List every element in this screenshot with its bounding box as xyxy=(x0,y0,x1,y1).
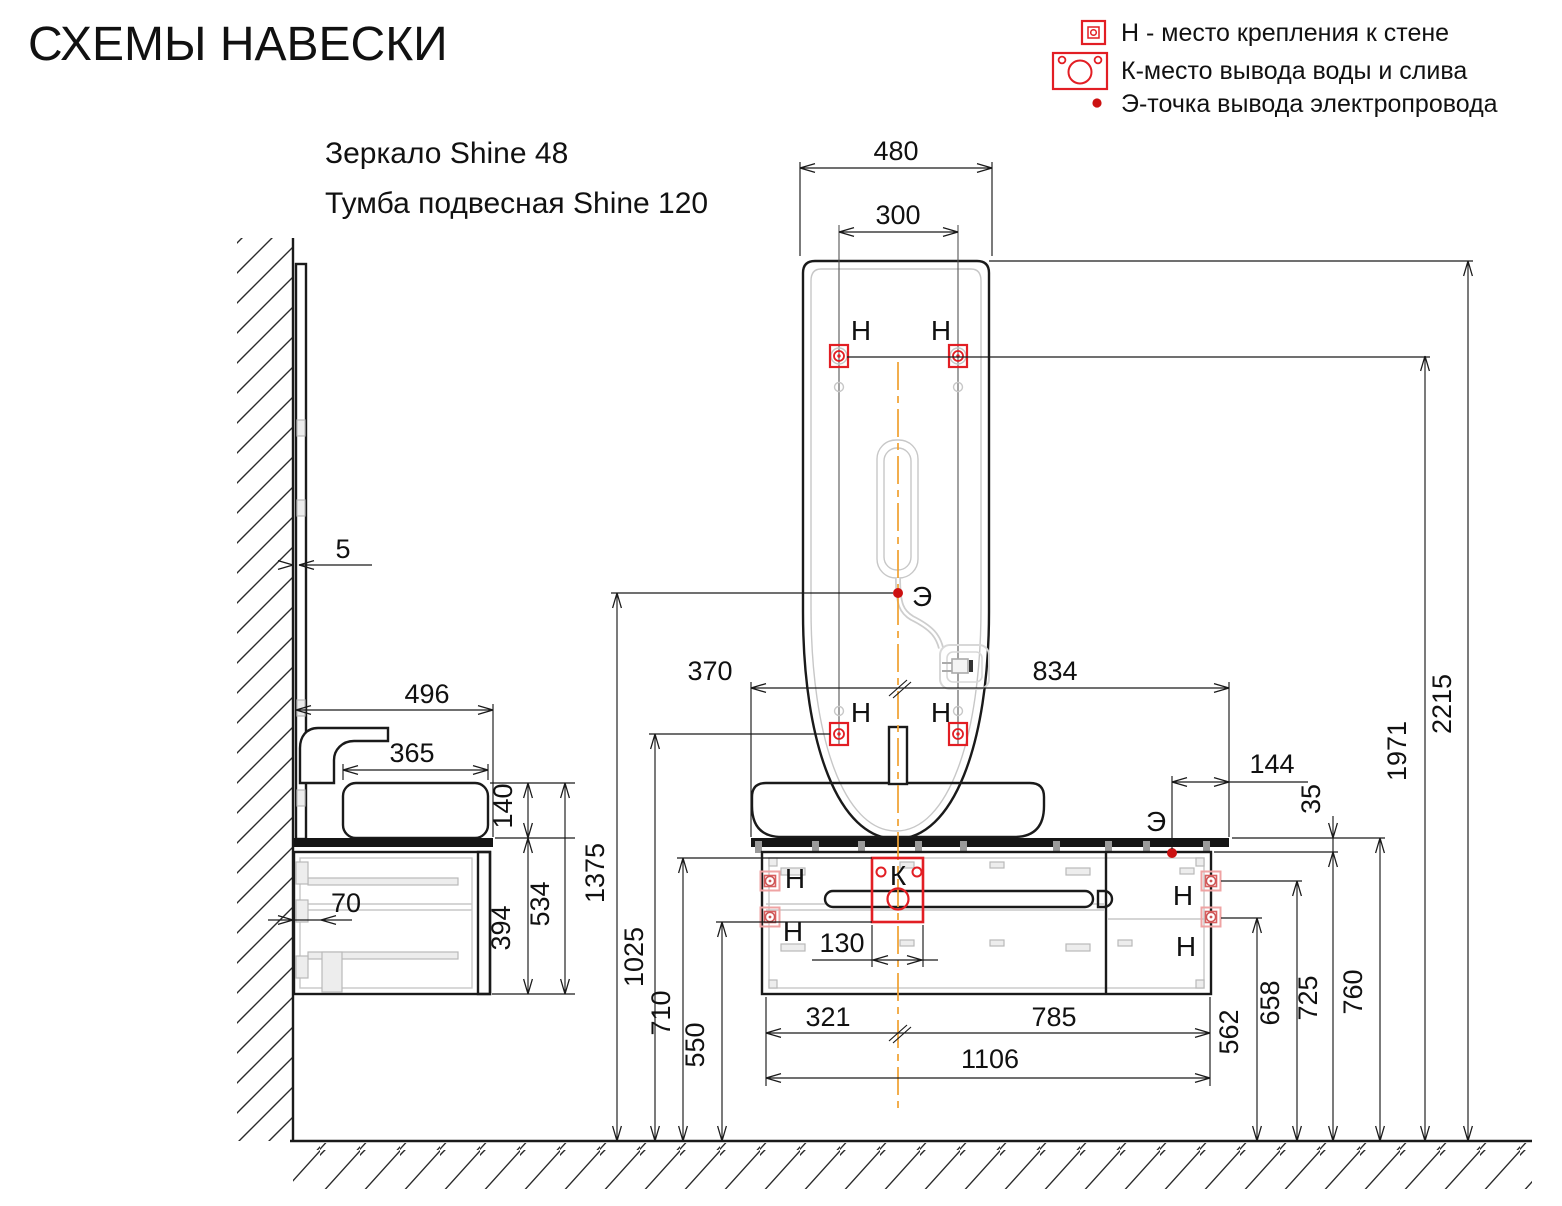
side-view xyxy=(294,264,493,994)
electric-point-icon xyxy=(1092,98,1101,107)
water-drain-icon xyxy=(1053,53,1107,89)
legend: Н - место крепления к стене К-место выво… xyxy=(1053,19,1498,118)
dim-countertop-gap: 35 xyxy=(1296,784,1326,814)
mount-letter: Н xyxy=(851,315,871,346)
dim-water-top-height: 710 xyxy=(646,990,676,1035)
countertop-front xyxy=(751,838,1229,847)
dim-mirror-mounts-height: 1971 xyxy=(1382,721,1412,781)
legend-mount-label: Н - место крепления к стене xyxy=(1121,19,1449,47)
dim-countertop-right: 834 xyxy=(1032,656,1077,686)
product-label-vanity: Тумба подвесная Shine 120 xyxy=(325,187,708,220)
dim-mount-spacing: 300 xyxy=(875,200,920,230)
dim-mount-upper-height: 658 xyxy=(1255,980,1285,1025)
countertop-side xyxy=(294,838,493,847)
dim-cabinet-height: 394 xyxy=(486,905,516,950)
product-label-mirror: Зеркало Shine 48 xyxy=(325,137,568,170)
wall-section xyxy=(237,238,293,1141)
dim-back-offset: 70 xyxy=(331,888,361,918)
mounting-scheme-page: СХЕМЫ НАВЕСКИ Зеркало Shine 48 Тумба под… xyxy=(0,0,1562,1206)
mount-letter: Н xyxy=(1173,880,1193,911)
electric-dot-countertop xyxy=(1167,848,1177,858)
cabinet-front xyxy=(762,852,1211,994)
legend-electric-label: Э-точка вывода электропровода xyxy=(1121,90,1498,118)
drawing-canvas: СХЕМЫ НАВЕСКИ Зеркало Shine 48 Тумба под… xyxy=(0,0,1562,1206)
dim-electric-offset: 144 xyxy=(1249,749,1294,779)
dim-countertop-left: 370 xyxy=(687,656,732,686)
floor-hatch xyxy=(293,1143,1532,1189)
dim-mount-lower-height: 562 xyxy=(1214,1009,1244,1054)
dim-cabinet-right: 785 xyxy=(1031,1002,1076,1032)
dim-side-height: 534 xyxy=(525,881,555,926)
dim-countertop-height: 760 xyxy=(1338,969,1368,1014)
dim-mirror-top-height: 2215 xyxy=(1427,674,1457,734)
sink-side xyxy=(343,783,488,838)
dim-sink-depth: 365 xyxy=(389,738,434,768)
dim-water-bottom-height: 550 xyxy=(680,1022,710,1067)
mount-letter: Н xyxy=(785,863,805,894)
electric-dot-mirror xyxy=(893,588,903,598)
legend-water-label: К-место вывода воды и слива xyxy=(1121,57,1467,85)
cabinet-handle xyxy=(825,891,1093,907)
mount-letter: Н xyxy=(931,697,951,728)
dim-electric-height: 1375 xyxy=(580,843,610,903)
dim-mirror-lower-height: 1025 xyxy=(619,927,649,987)
mount-letter: Н xyxy=(851,697,871,728)
dim-water-width: 130 xyxy=(819,928,864,958)
electric-letter: Э xyxy=(912,581,932,612)
water-letter: К xyxy=(890,860,907,891)
dim-mirror-width: 480 xyxy=(873,136,918,166)
dim-wall-gap: 5 xyxy=(335,534,350,564)
wall-mount-icon xyxy=(1082,21,1105,44)
plug-icon xyxy=(940,645,989,689)
dim-depth-total: 496 xyxy=(404,679,449,709)
wall-hatch xyxy=(237,238,293,1141)
page-title: СХЕМЫ НАВЕСКИ xyxy=(28,18,448,71)
dim-cabinet-top-height: 725 xyxy=(1293,975,1323,1020)
faucet-side xyxy=(300,728,388,783)
dim-cabinet-left: 321 xyxy=(805,1002,850,1032)
dim-sink-height: 140 xyxy=(488,783,518,828)
mount-letter: Н xyxy=(931,315,951,346)
dim-cabinet-width: 1106 xyxy=(961,1044,1019,1074)
mount-letter: Н xyxy=(1176,931,1196,962)
mount-letter: Н xyxy=(783,916,803,947)
electric-letter: Э xyxy=(1146,806,1166,837)
floor-section xyxy=(290,1141,1532,1189)
